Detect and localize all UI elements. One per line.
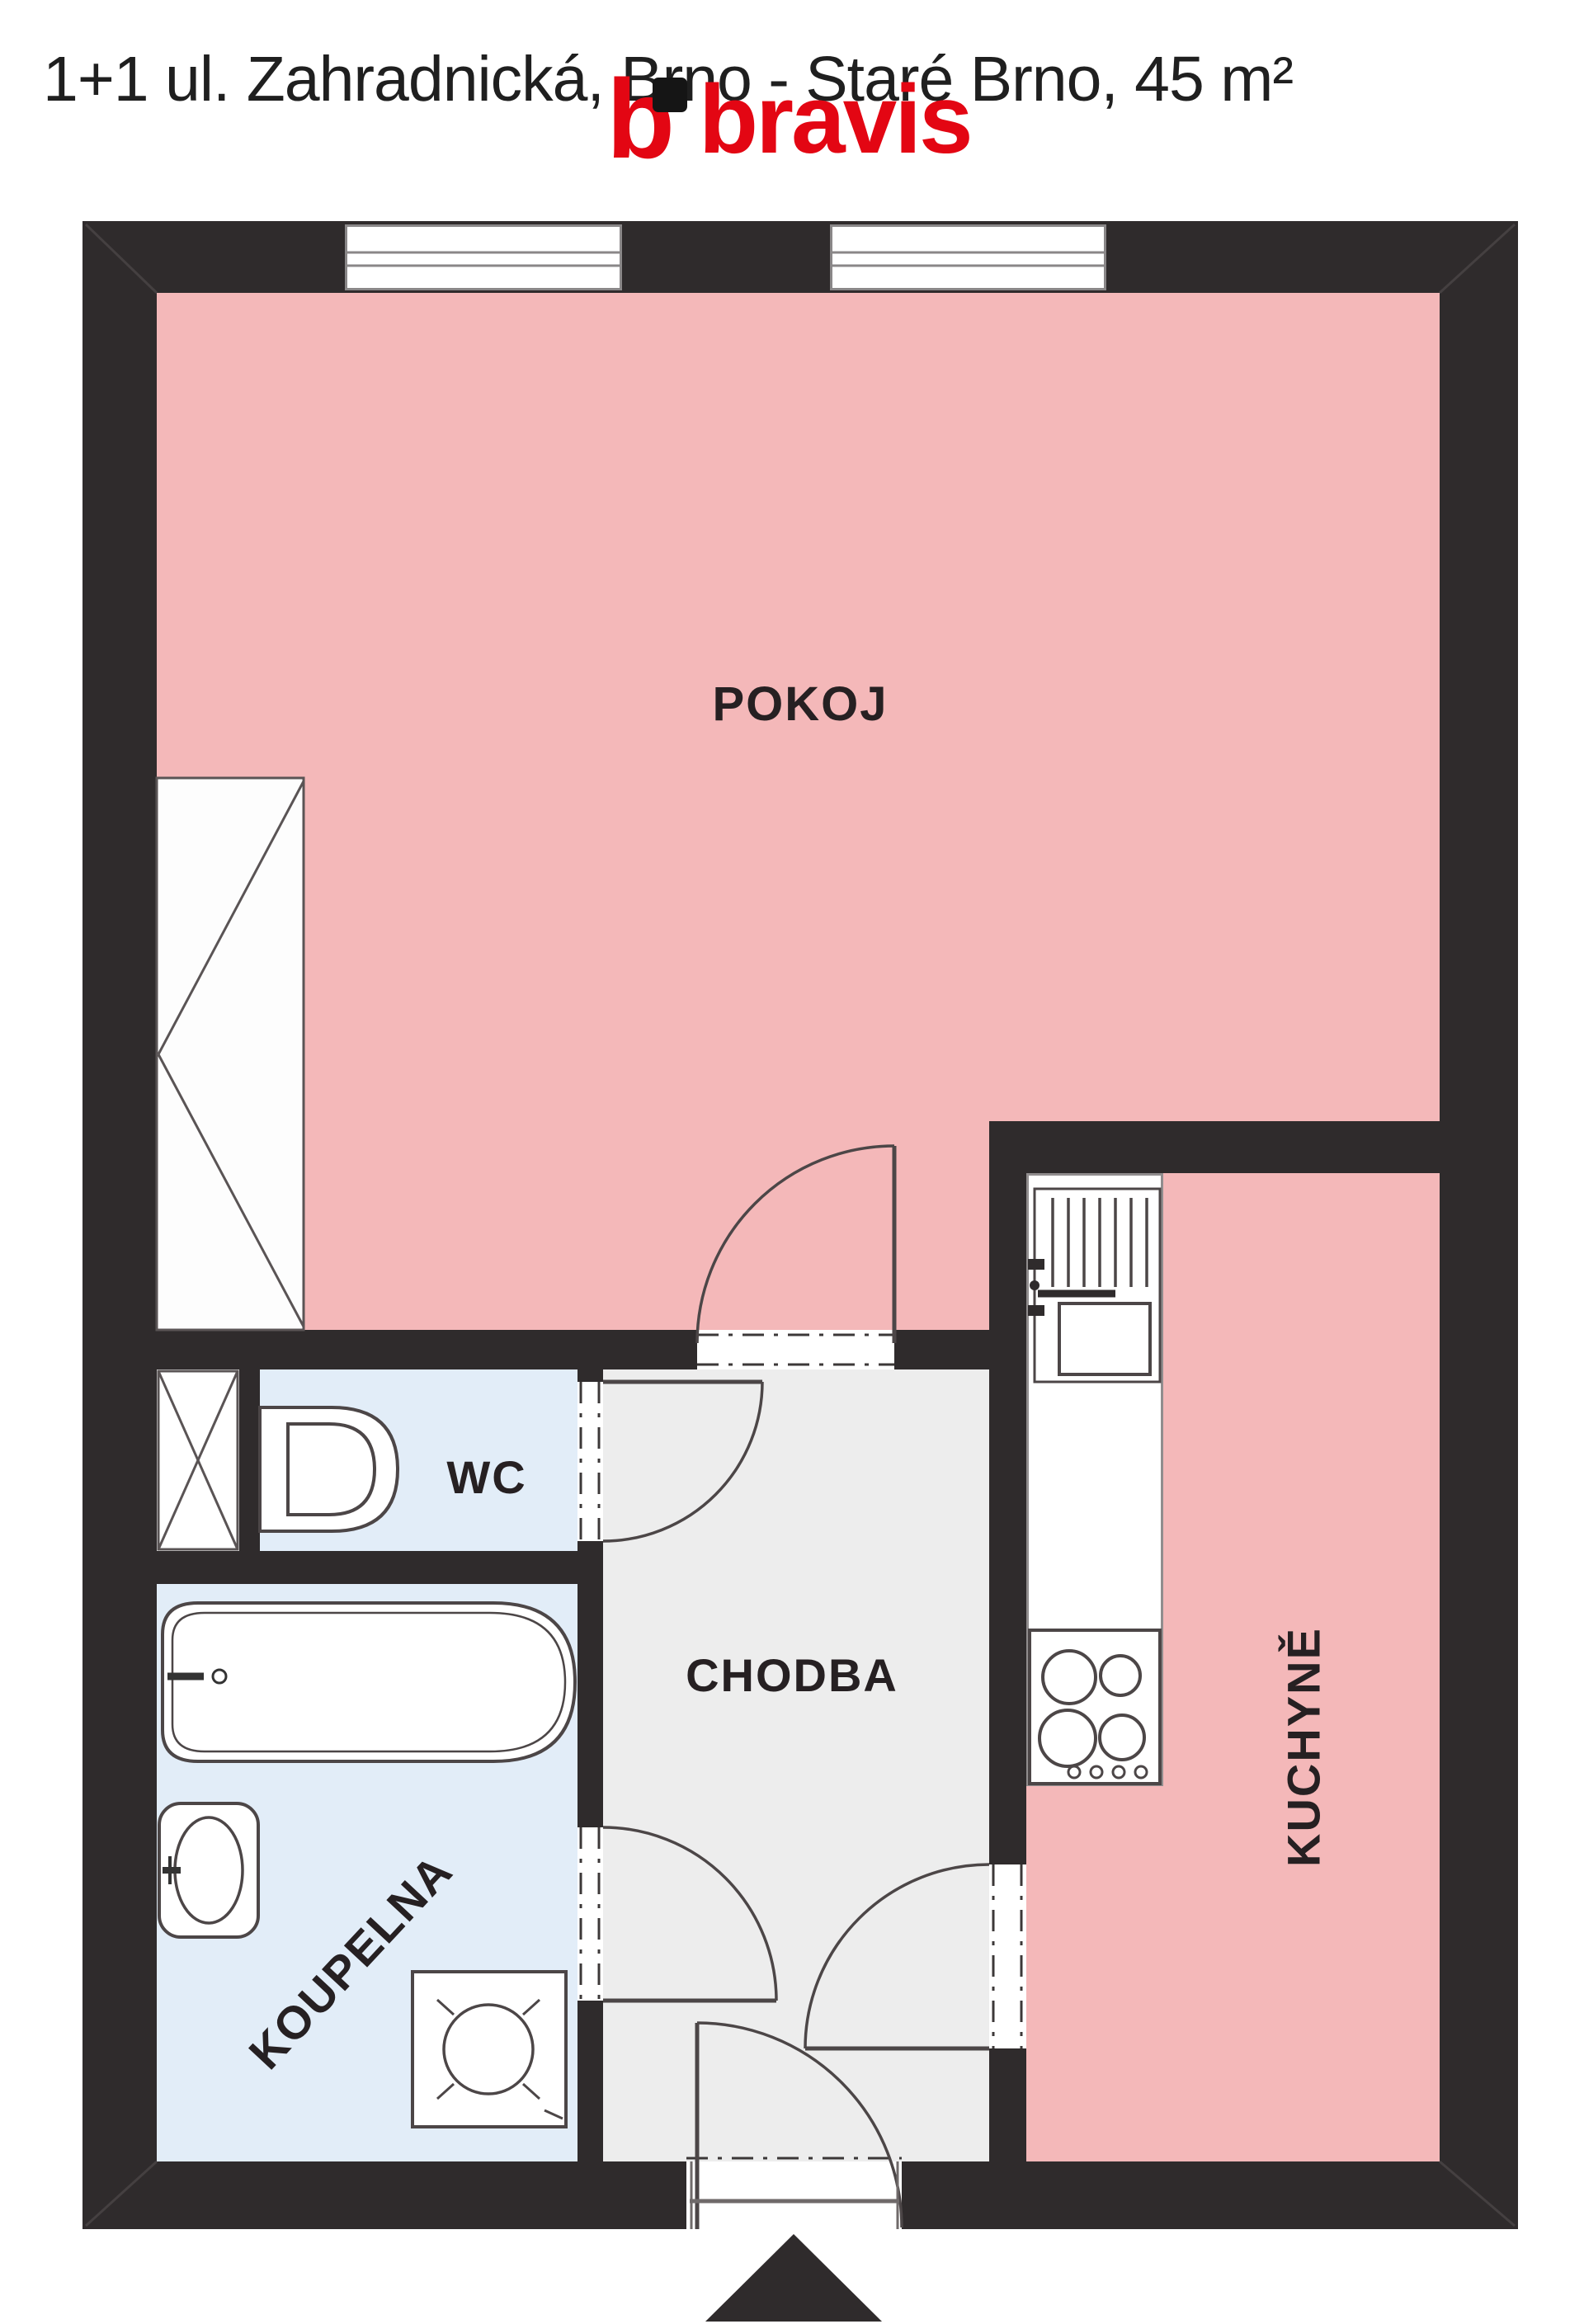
label-wc: WC xyxy=(429,1450,544,1504)
entrance-threshold xyxy=(690,2161,899,2229)
opening-dash-lines xyxy=(581,1335,1021,2158)
bathtub-icon xyxy=(163,1603,575,1761)
wardrobe-icon xyxy=(157,778,304,1330)
logo-square-icon xyxy=(653,78,687,112)
label-kuchyne: KUCHYNĚ xyxy=(1277,1549,1331,1945)
label-pokoj: POKOJ xyxy=(652,676,949,732)
door-arc-koupelna xyxy=(603,1827,776,2001)
toilet-icon xyxy=(260,1407,398,1531)
logo-b-glyph: b xyxy=(606,54,675,183)
floorplan-page: 1+1 ul. Zahradnická, Brno - Staré Brno, … xyxy=(0,0,1584,2324)
bravis-logo: b bravis xyxy=(606,66,971,173)
door-arc-kuchyne xyxy=(805,1864,989,2048)
window-glazing-icon xyxy=(347,252,1104,266)
ventilation-shaft-icon xyxy=(158,1371,238,1549)
logo-wordmark: bravis xyxy=(699,66,971,173)
plan-linework xyxy=(0,0,1584,2324)
door-arc-pokoj xyxy=(697,1146,894,1343)
bravis-logo-icon: b xyxy=(606,66,699,173)
door-arc-wc xyxy=(603,1382,762,1541)
kitchen-sink-icon xyxy=(1028,1189,1160,1382)
stove-icon xyxy=(1030,1630,1160,1784)
sink-tap-icon xyxy=(1028,1259,1044,1270)
door-arc-entrance xyxy=(697,2023,902,2227)
washing-machine-icon xyxy=(412,1972,566,2127)
entrance-arrow-icon xyxy=(705,2234,882,2322)
label-chodba: CHODBA xyxy=(627,1648,957,1702)
washbasin-icon xyxy=(159,1803,258,1937)
